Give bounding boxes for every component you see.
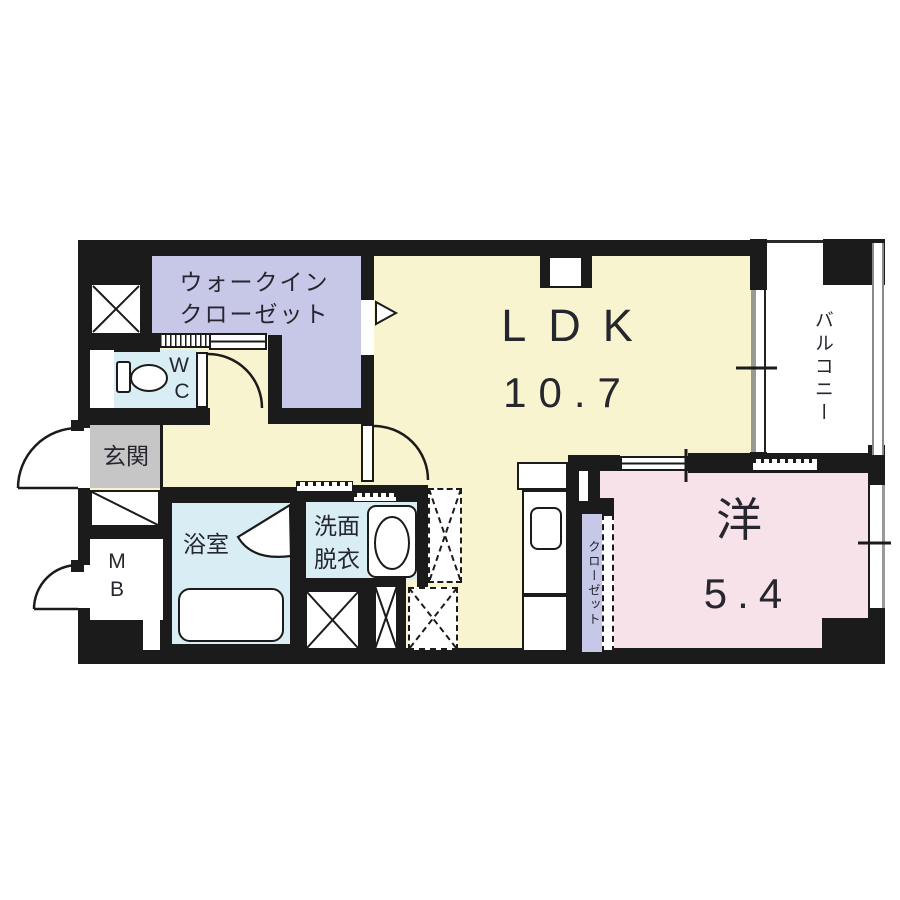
toilet-label-w: W <box>165 354 193 378</box>
closet-label: クローゼット <box>582 517 602 649</box>
hall-ldk-door-arc <box>374 426 428 480</box>
toilet-label-c: C <box>168 380 196 404</box>
ldk-area-label: 10.7 <box>456 368 668 418</box>
floorplan-image: ウォークイン クローゼット LDK 10.7 バルコニー W C 玄関 M B … <box>0 0 900 900</box>
walkin-closet-label2: クローゼット <box>152 296 357 332</box>
mb-door-arc <box>34 565 78 609</box>
entrance-door-arc <box>18 428 78 488</box>
balcony-label: バルコニー <box>806 295 838 440</box>
shoe-cabinet-diagonal <box>92 492 158 525</box>
washroom-label2: 脱衣 <box>308 546 366 573</box>
entrance-label: 玄関 <box>92 443 160 469</box>
bathroom-door-swing <box>238 505 291 557</box>
bathroom-label: 浴室 <box>176 530 236 558</box>
washbasin-icon <box>375 517 409 569</box>
meter-box-label-b: B <box>103 578 131 603</box>
ldk-name-label: LDK <box>456 300 678 352</box>
wic-door-direction-arrow <box>376 302 396 324</box>
meter-box-label-m: M <box>103 550 131 575</box>
washroom-label1: 洗面 <box>308 513 366 540</box>
toilet-door-arc <box>208 354 262 408</box>
walkin-closet-label: ウォークイン <box>152 264 357 300</box>
toilet-tank-icon <box>117 362 130 392</box>
western-room-name-label: 洋 <box>710 496 768 546</box>
western-room-area-label: 5.4 <box>678 570 808 618</box>
toilet-bowl-icon <box>131 365 167 391</box>
